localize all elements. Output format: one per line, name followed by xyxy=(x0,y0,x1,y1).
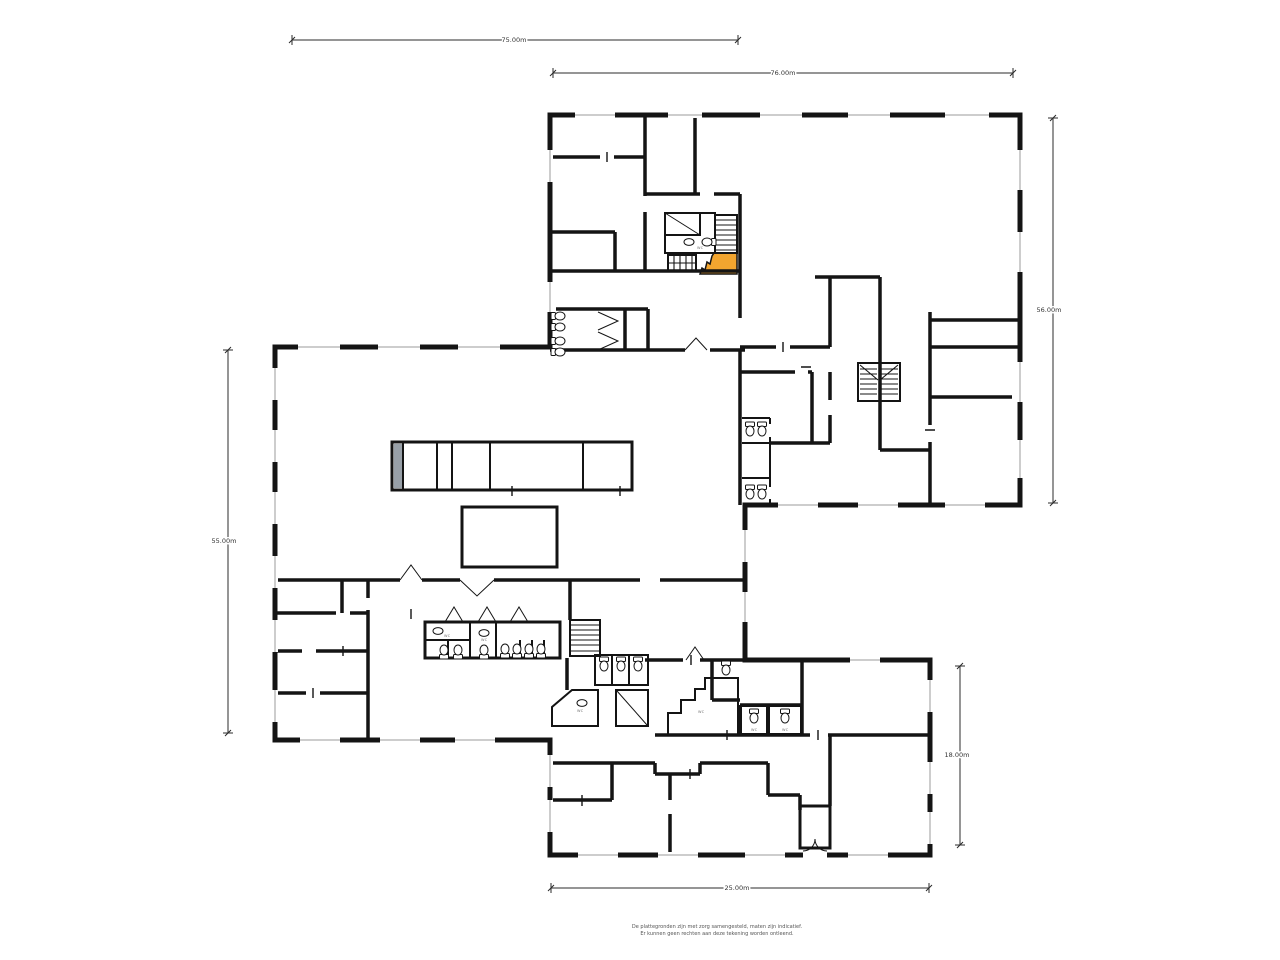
room-label: wc xyxy=(481,638,488,643)
footer-line-2: Er kunnen geen rechten aan deze tekening… xyxy=(640,931,794,937)
upper-bathroom xyxy=(665,213,715,253)
staircase-bathroom xyxy=(715,215,737,253)
door-swing xyxy=(400,565,422,580)
door-swing xyxy=(598,312,618,330)
upper-shower-diagonal xyxy=(665,213,700,235)
annex-blue-room xyxy=(552,690,598,726)
door-swing xyxy=(686,647,704,660)
lower-wing-walls xyxy=(553,660,930,852)
dimension-bottom: 25.00m xyxy=(548,883,932,893)
dimension-left: 55.00m xyxy=(212,347,237,736)
dimension-label-bottom: 25.00m xyxy=(725,884,750,892)
dimension-right: 56.00m xyxy=(1037,115,1062,506)
door-swing xyxy=(445,607,463,622)
staircase-small xyxy=(668,255,696,271)
dimension-top-left: 75.00m xyxy=(289,35,741,45)
counter-block xyxy=(392,442,632,567)
door-jamb-ticks xyxy=(313,152,935,806)
windows xyxy=(272,112,1023,858)
upper-wing-walls xyxy=(550,115,1020,505)
floor-plan-canvas: wc wc wc wc wc wc wc 75.00m 76.00m 56.00… xyxy=(0,0,1280,960)
dimension-label-bottom-right: 18.00m xyxy=(945,751,970,759)
counter-block-lower xyxy=(462,507,557,567)
door-swing-marks xyxy=(400,312,707,660)
double-door-swing xyxy=(460,580,494,596)
footer-line-1: De plattegronden zijn met zorg samengest… xyxy=(632,924,803,930)
staircase-middle xyxy=(570,620,600,656)
dimension-label-top-left: 75.00m xyxy=(502,36,527,44)
lower-blue-room xyxy=(668,678,738,735)
room-label: wc xyxy=(698,710,705,715)
building-outline xyxy=(275,115,1020,855)
annex-shower-diagonal xyxy=(617,691,647,725)
door-swing xyxy=(478,607,496,622)
room-label: wc xyxy=(782,728,789,733)
footer-disclaimer: De plattegronden zijn met zorg samengest… xyxy=(632,924,803,937)
room-label: wc xyxy=(577,709,584,714)
staircase-upper-u xyxy=(858,363,900,401)
room-label: wc xyxy=(697,246,704,251)
room-label: wc xyxy=(444,634,451,639)
room-label: wc xyxy=(751,728,758,733)
entrance-opening xyxy=(803,851,827,859)
door-swing xyxy=(510,607,528,622)
door-swing xyxy=(685,338,707,350)
dimension-bottom-right: 18.00m xyxy=(945,663,970,848)
counter-gray-cell xyxy=(394,444,402,488)
floor-plan-page: wc wc wc wc wc wc wc 75.00m 76.00m 56.00… xyxy=(0,0,1280,960)
orange-areas xyxy=(700,253,830,859)
dimension-top-right: 76.00m xyxy=(550,68,1016,78)
dimension-label-top-right: 76.00m xyxy=(771,69,796,77)
dimension-label-left: 55.00m xyxy=(212,537,237,545)
door-swing xyxy=(598,332,618,350)
dimension-label-right: 56.00m xyxy=(1037,306,1062,314)
